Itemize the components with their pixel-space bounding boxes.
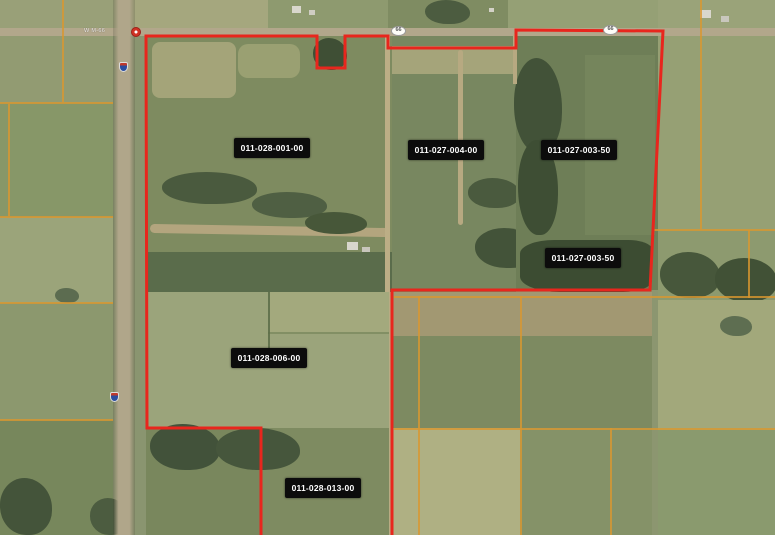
parcel-grid-line	[62, 0, 64, 102]
parcel-grid-line	[0, 216, 113, 218]
parcel-grid-line	[652, 229, 775, 231]
field-patch	[0, 36, 113, 103]
route-oval-label: 66	[395, 28, 401, 34]
dirt-path	[458, 50, 463, 225]
tree-cluster	[305, 212, 367, 234]
parcel-grid-line	[0, 419, 113, 421]
parcel-grid-line	[0, 102, 113, 104]
field-patch	[238, 44, 300, 78]
parcel-grid-line	[8, 104, 10, 216]
parcel-grid-line	[0, 302, 113, 304]
building	[347, 242, 358, 250]
tree-cluster	[425, 0, 470, 24]
field-patch	[658, 300, 775, 430]
route-oval-label: 66	[607, 27, 613, 33]
building	[292, 6, 301, 13]
field-patch	[520, 428, 652, 535]
satellite-parcel-map[interactable]: W M-66 66 66 011-028-001-00 011-027-004-…	[0, 0, 775, 535]
parcel-grid-line	[700, 0, 702, 229]
field-patch	[392, 46, 516, 74]
road-name-label: W M-66	[84, 28, 105, 34]
field-patch	[0, 103, 113, 217]
parcel-grid-line	[748, 230, 750, 298]
interstate-shield-icon	[110, 392, 119, 402]
parcel-label: 011-027-003-50	[541, 140, 617, 160]
field-patch	[0, 303, 113, 420]
field-patch	[135, 36, 146, 535]
parcel-grid-line	[610, 428, 612, 535]
parcel-grid-line	[418, 296, 420, 535]
road-dirt-vertical	[389, 292, 393, 535]
building	[721, 16, 729, 22]
road-highway-vertical	[113, 0, 135, 535]
hedgerow	[268, 332, 392, 334]
field-patch	[146, 252, 392, 292]
road-dirt-vertical	[385, 36, 390, 292]
field-patch	[118, 0, 268, 28]
tree-cluster	[150, 424, 220, 470]
tree-cluster	[216, 428, 300, 470]
parcel-grid-line	[520, 296, 522, 535]
field-patch	[270, 292, 392, 334]
parcel-label: 011-028-013-00	[285, 478, 361, 498]
tree-cluster	[468, 178, 520, 208]
route-oval-icon: 66	[391, 26, 406, 36]
field-patch	[268, 0, 388, 28]
field-patch	[508, 0, 658, 28]
parcel-grid-line	[394, 428, 775, 430]
route-circle-marker-icon	[131, 27, 141, 37]
field-patch	[658, 0, 775, 28]
parcel-grid-line	[394, 296, 775, 298]
interstate-shield-icon	[119, 62, 128, 72]
pond	[720, 316, 752, 336]
field-patch	[392, 428, 520, 535]
field-patch	[658, 30, 775, 230]
field-patch	[0, 0, 118, 28]
tree-cluster	[660, 252, 720, 298]
pond	[55, 288, 79, 303]
field-patch	[392, 292, 652, 336]
tree-cluster	[313, 38, 347, 70]
tree-cluster	[162, 172, 257, 204]
tree-cluster	[0, 478, 52, 535]
field-patch	[152, 42, 236, 98]
building	[309, 10, 315, 15]
parcel-label: 011-028-001-00	[234, 138, 310, 158]
field-patch	[392, 336, 652, 428]
parcel-label: 011-027-003-50	[545, 248, 621, 268]
parcel-label: 011-028-006-00	[231, 348, 307, 368]
road-dirt-vertical	[513, 34, 517, 84]
route-oval-icon: 66	[603, 25, 618, 35]
building	[489, 8, 494, 12]
parcel-label: 011-027-004-00	[408, 140, 484, 160]
field-patch	[658, 430, 775, 535]
